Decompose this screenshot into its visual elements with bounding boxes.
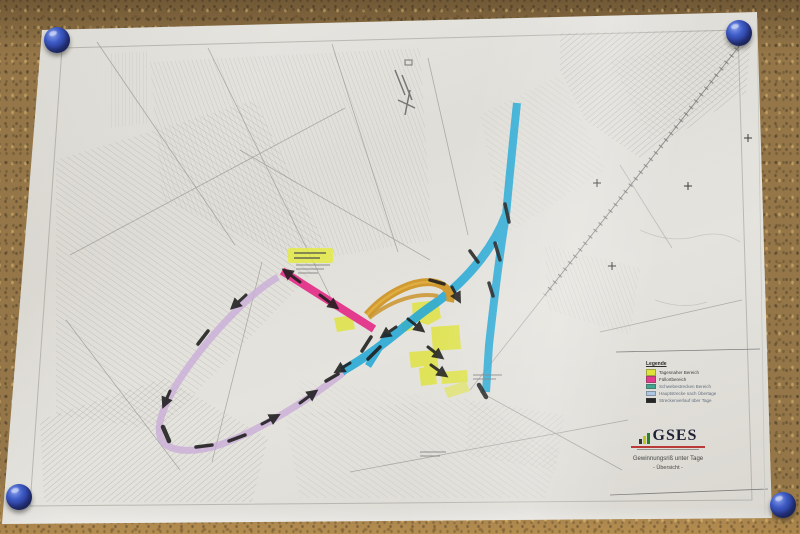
gses-logo-icon: [639, 433, 650, 444]
legend: Legende Tagesnaher Bereich Füllortbereic…: [646, 361, 758, 404]
legend-item-label: Streckenverlauf über Tage: [659, 398, 711, 403]
legend-swatch-pink: [646, 376, 656, 383]
legend-item: Füllortbereich: [646, 376, 758, 383]
legend-item-label: Hauptstrecke nach Übertage: [659, 391, 716, 396]
legend-item-label: Schwebestrecken Bereich: [659, 384, 711, 389]
gses-address-rule: [637, 449, 699, 450]
gses-tagline-rule: [631, 446, 705, 448]
legend-item: Streckenverlauf über Tage: [646, 397, 758, 404]
map-title: Gewinnungsriß unter Tage: [606, 456, 730, 462]
legend-item: Hauptstrecke nach Übertage: [646, 390, 758, 397]
legend-swatch-yellow: [646, 369, 656, 376]
photo-of-pinned-map: { "legend": { "title": "Legende", "items…: [0, 0, 800, 534]
yellow-highlights: [288, 248, 470, 398]
map-sheet: Legende Tagesnaher Bereich Füllortbereic…: [0, 0, 800, 534]
legend-swatch-black: [646, 398, 656, 403]
legend-swatch-teal: [646, 384, 656, 389]
push-pin-top-left[interactable]: [44, 27, 70, 53]
legend-item: Schwebestrecken Bereich: [646, 383, 758, 390]
legend-item: Tagesnaher Bereich: [646, 369, 758, 376]
push-pin-bottom-right[interactable]: [770, 492, 796, 518]
legend-item-label: Tagesnaher Bereich: [659, 370, 699, 375]
legend-swatch-lightblue: [646, 391, 656, 396]
push-pin-bottom-left[interactable]: [6, 484, 32, 510]
register-marks: [593, 134, 752, 270]
legend-item-label: Füllortbereich: [659, 377, 686, 382]
title-block: GSES Gewinnungsriß unter Tage - Übersich…: [606, 428, 730, 471]
push-pin-top-right[interactable]: [726, 20, 752, 46]
gses-logo-text: GSES: [653, 428, 698, 444]
gses-logo: GSES: [606, 428, 730, 444]
legend-title: Legende: [646, 361, 758, 367]
map-subtitle: - Übersicht -: [606, 465, 730, 471]
